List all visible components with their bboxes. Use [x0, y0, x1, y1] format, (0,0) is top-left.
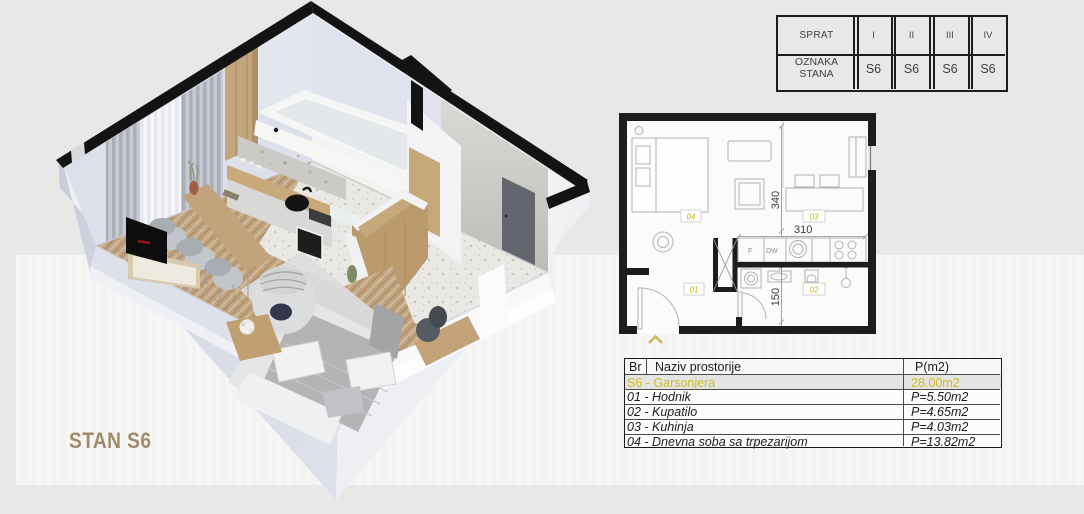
- svg-text:01: 01: [690, 286, 699, 295]
- svg-text:310: 310: [794, 224, 812, 236]
- svg-text:340: 340: [770, 191, 782, 209]
- svg-text:150: 150: [770, 288, 782, 306]
- svg-text:DW: DW: [766, 248, 778, 255]
- svg-text:04: 04: [687, 213, 696, 222]
- svg-text:02: 02: [810, 286, 819, 295]
- svg-text:F: F: [748, 248, 752, 255]
- svg-text:03: 03: [810, 213, 819, 222]
